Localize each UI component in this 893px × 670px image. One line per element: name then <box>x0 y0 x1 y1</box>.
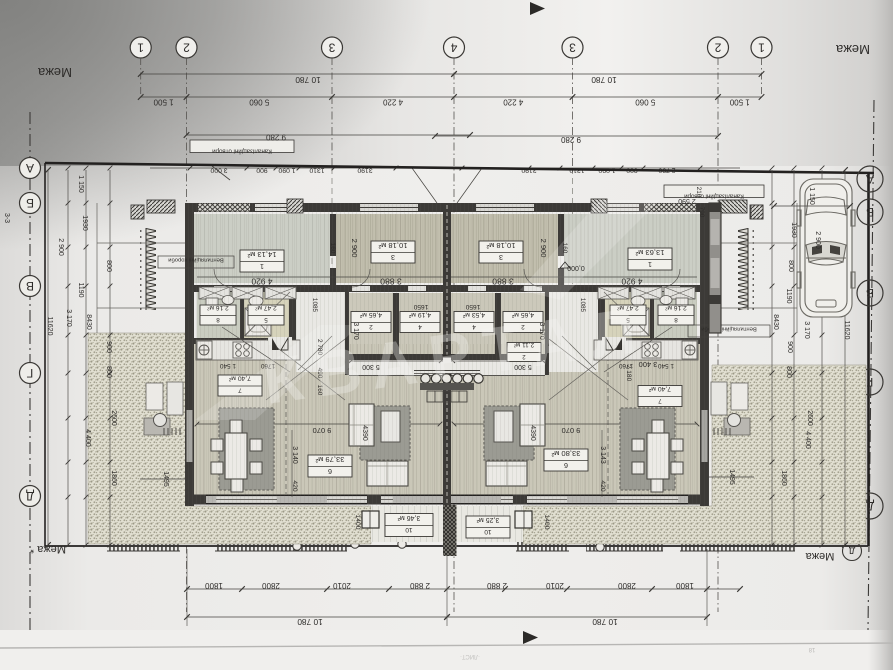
svg-text:7,40 м²: 7,40 м² <box>228 374 251 381</box>
svg-text:10,18 м²: 10,18 м² <box>378 241 407 250</box>
svg-text:900: 900 <box>105 341 112 353</box>
svg-text:33,79 м²: 33,79 м² <box>315 455 344 464</box>
svg-text:900: 900 <box>256 167 268 174</box>
svg-text:7: 7 <box>238 386 242 393</box>
svg-text:3 140: 3 140 <box>291 446 298 464</box>
svg-text:8430: 8430 <box>85 314 92 330</box>
svg-text:Д: Д <box>26 489 34 503</box>
svg-text:420: 420 <box>599 480 606 492</box>
svg-text:Д: Д <box>848 545 855 556</box>
svg-text:3: 3 <box>499 253 503 262</box>
svg-text:3-3: 3-3 <box>3 213 10 223</box>
svg-text:1190: 1190 <box>77 282 84 297</box>
svg-text:1 090: 1 090 <box>278 167 295 174</box>
svg-text:1800: 1800 <box>205 581 223 590</box>
svg-text:1190: 1190 <box>785 288 792 303</box>
svg-text:10 780: 10 780 <box>295 75 321 85</box>
svg-text:2 900: 2 900 <box>814 231 821 249</box>
svg-text:1 540: 1 540 <box>220 362 236 369</box>
svg-text:1860: 1860 <box>780 470 787 486</box>
svg-text:6: 6 <box>328 467 332 476</box>
svg-text:Межа: Межа <box>805 550 835 562</box>
svg-text:790: 790 <box>698 207 705 218</box>
svg-text:1400: 1400 <box>543 514 550 529</box>
svg-text:1 150: 1 150 <box>808 187 815 205</box>
svg-text:А: А <box>26 161 34 175</box>
svg-text:5 060: 5 060 <box>635 98 656 107</box>
svg-text:800: 800 <box>787 260 794 272</box>
svg-text:В: В <box>866 286 874 300</box>
svg-text:3 000: 3 000 <box>210 167 227 174</box>
svg-text:1: 1 <box>260 262 264 271</box>
svg-text:Межа: Межа <box>37 65 72 80</box>
svg-text:1930: 1930 <box>790 222 797 238</box>
svg-text:1 540: 1 540 <box>658 362 674 369</box>
svg-text:5 060: 5 060 <box>249 98 270 107</box>
svg-text:4 920: 4 920 <box>251 277 272 287</box>
svg-text:2,16 м²: 2,16 м² <box>665 304 687 311</box>
svg-text:8430: 8430 <box>772 314 779 330</box>
svg-text:Г: Г <box>26 366 33 380</box>
svg-text:4390: 4390 <box>529 425 536 441</box>
svg-text:3: 3 <box>328 40 335 54</box>
svg-text:3,25 м²: 3,25 м² <box>476 516 499 523</box>
svg-text:9 070: 9 070 <box>562 426 581 435</box>
svg-text:11620: 11620 <box>843 321 850 340</box>
svg-text:4 400: 4 400 <box>804 431 811 449</box>
svg-text:В: В <box>26 279 34 293</box>
svg-text:2 590: 2 590 <box>678 197 696 204</box>
svg-text:4 920: 4 920 <box>621 277 642 287</box>
svg-text:4 400: 4 400 <box>84 429 91 447</box>
svg-text:1400: 1400 <box>354 514 361 529</box>
svg-text:1085: 1085 <box>311 298 318 313</box>
svg-text:10: 10 <box>405 526 413 533</box>
svg-text:10 780: 10 780 <box>591 75 617 85</box>
svg-text:7,40 м²: 7,40 м² <box>648 385 671 392</box>
svg-text:Д: Д <box>866 499 874 513</box>
svg-text:2010: 2010 <box>333 581 351 590</box>
svg-text:·ЛИСТ·: ·ЛИСТ· <box>460 653 480 659</box>
svg-text:3 880: 3 880 <box>492 277 514 287</box>
svg-text:4: 4 <box>450 40 457 54</box>
svg-text:9 280: 9 280 <box>560 135 581 144</box>
svg-text:1650: 1650 <box>413 303 428 310</box>
svg-text:3,46 м²: 3,46 м² <box>397 514 420 521</box>
svg-text:5: 5 <box>264 316 268 323</box>
svg-text:2 900: 2 900 <box>57 238 64 256</box>
svg-text:2: 2 <box>369 323 373 330</box>
svg-text:2800: 2800 <box>618 581 636 590</box>
svg-text:3: 3 <box>391 253 395 262</box>
svg-text:10,18 м²: 10,18 м² <box>486 241 515 250</box>
svg-text:А: А <box>866 172 874 186</box>
svg-text:7: 7 <box>658 397 662 404</box>
svg-text:2010: 2010 <box>546 581 564 590</box>
svg-text:1: 1 <box>758 40 765 54</box>
svg-text:210: 210 <box>695 187 702 198</box>
svg-text:8: 8 <box>674 316 678 323</box>
svg-text:160: 160 <box>329 243 336 254</box>
svg-text:Межа: Межа <box>835 42 870 57</box>
svg-text:2 900: 2 900 <box>539 239 548 258</box>
svg-text:1650: 1650 <box>465 303 480 310</box>
svg-text:800: 800 <box>105 366 112 378</box>
svg-text:Г: Г <box>866 375 873 389</box>
svg-text:160: 160 <box>561 243 568 254</box>
svg-text:4390: 4390 <box>361 425 368 441</box>
svg-text:10 780: 10 780 <box>297 617 323 627</box>
svg-text:Б: Б <box>866 205 874 219</box>
svg-text:2 880: 2 880 <box>486 581 507 590</box>
svg-text:2600: 2600 <box>110 410 117 426</box>
svg-text:800: 800 <box>785 366 792 378</box>
svg-text:10: 10 <box>484 528 492 535</box>
svg-text:10 780: 10 780 <box>592 617 618 627</box>
svg-text:8: 8 <box>216 316 220 323</box>
svg-text:3 143: 3 143 <box>599 446 606 464</box>
svg-text:Каналізаційні отвори: Каналізаційні отвори <box>212 148 272 155</box>
svg-text:1: 1 <box>137 40 144 54</box>
svg-text:4 220: 4 220 <box>503 98 524 107</box>
svg-text:2800: 2800 <box>262 581 280 590</box>
svg-text:2: 2 <box>714 40 721 54</box>
svg-text:Б: Б <box>26 196 34 210</box>
svg-text:1: 1 <box>648 260 652 269</box>
svg-text:3: 3 <box>569 40 576 54</box>
svg-text:6: 6 <box>564 461 568 470</box>
svg-text:3 170: 3 170 <box>803 321 810 339</box>
svg-text:2,16 м²: 2,16 м² <box>207 304 229 311</box>
svg-text:3 880: 3 880 <box>380 277 402 287</box>
svg-text:4,19 м²: 4,19 м² <box>408 311 431 318</box>
svg-text:420: 420 <box>291 480 298 492</box>
svg-text:1 150: 1 150 <box>77 175 84 193</box>
svg-text:1 500: 1 500 <box>153 98 174 107</box>
svg-text:Вентиляційні короби: Вентиляційні короби <box>168 257 223 264</box>
svg-text:18: 18 <box>808 646 815 652</box>
svg-text:4 220: 4 220 <box>382 98 403 107</box>
svg-text:33,80 м²: 33,80 м² <box>551 449 580 458</box>
svg-text:11620: 11620 <box>46 317 53 336</box>
svg-text:9 280: 9 280 <box>265 133 286 142</box>
svg-text:13,63 м²: 13,63 м² <box>635 248 664 257</box>
svg-text:9 070: 9 070 <box>313 426 332 435</box>
svg-text:2,47 м²: 2,47 м² <box>255 304 277 311</box>
svg-text:4,65 м²: 4,65 м² <box>359 311 382 318</box>
svg-text:1930: 1930 <box>81 215 88 231</box>
svg-text:3 170: 3 170 <box>65 309 72 327</box>
svg-text:2: 2 <box>183 40 190 54</box>
svg-text:800: 800 <box>105 260 112 272</box>
svg-text:900: 900 <box>786 341 793 353</box>
svg-text:2 900: 2 900 <box>350 239 359 258</box>
svg-text:2 880: 2 880 <box>409 581 430 590</box>
svg-text:14,13 м²: 14,13 м² <box>247 250 276 259</box>
svg-text:1860: 1860 <box>110 470 117 486</box>
svg-text:1800: 1800 <box>676 581 694 590</box>
svg-text:1 500: 1 500 <box>729 98 750 107</box>
svg-text:2600: 2600 <box>806 410 813 426</box>
